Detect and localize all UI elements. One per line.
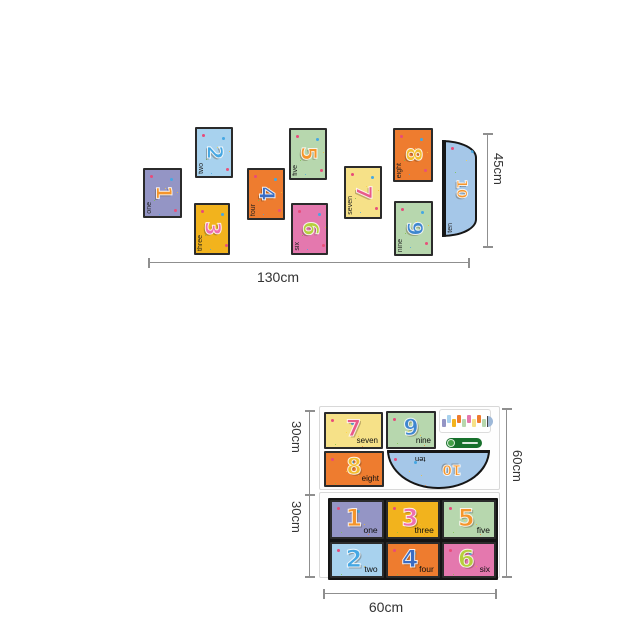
number-glyph-8: 8: [403, 147, 424, 162]
number-glyph-6: 6: [299, 221, 320, 236]
card-label-eight: eight: [362, 474, 379, 484]
sticker-card-three: 3three: [194, 203, 230, 255]
sticker-card-seven: 7seven: [344, 166, 382, 219]
sticker-card-six: 6six: [442, 542, 496, 578]
dim-line-arrangement-height: [483, 133, 493, 248]
card-label-ten: ten: [415, 455, 425, 464]
dim-label-sheet-total-height: 60cm: [511, 450, 524, 482]
sticker-card-two: 2two: [330, 542, 384, 578]
sticker-card-seven: 7seven: [324, 412, 383, 449]
number-glyph-10: 10: [454, 178, 468, 197]
thumbnail-card: [457, 415, 461, 423]
sticker-card-two: 2two: [195, 127, 233, 178]
card-label-two: two: [364, 564, 377, 574]
sticker-card-nine: 9nine: [394, 201, 433, 256]
card-label-ten: ten: [447, 223, 454, 233]
thumbnail-card: [447, 415, 451, 423]
card-label-four: four: [250, 204, 257, 216]
card-label-five: five: [292, 165, 299, 176]
thumbnail-card: [482, 419, 486, 427]
dim-line-sheet-total-height: [502, 408, 512, 578]
number-glyph-8: 8: [346, 457, 361, 479]
sticker-sheet-lower: 1one3three5five2two4four6six: [319, 492, 500, 578]
number-glyph-5: 5: [458, 506, 475, 530]
number-glyph-4: 4: [256, 186, 277, 201]
number-glyph-5: 5: [298, 146, 319, 161]
card-label-eight: eight: [396, 163, 403, 178]
card-label-one: one: [146, 202, 153, 214]
number-glyph-6: 6: [458, 547, 475, 571]
sticker-card-ten: 10ten: [387, 450, 490, 489]
sticker-card-three: 3three: [386, 500, 440, 539]
sticker-card-nine: 9nine: [386, 411, 436, 449]
thumbnail-semicircle-card: [487, 416, 493, 427]
number-glyph-4: 4: [402, 547, 419, 571]
sticker-sheet-upper: 7seven9nine8eight10ten: [319, 406, 500, 490]
thumbnail-card: [452, 419, 456, 427]
dim-label-lower-sheet-height: 30cm: [290, 501, 303, 533]
number-glyph-9: 9: [403, 221, 424, 236]
number-glyph-1: 1: [152, 185, 173, 200]
sticker-card-one: 1one: [330, 500, 384, 539]
dim-line-sheet-width: [323, 589, 497, 599]
brand-logo: [446, 438, 482, 448]
number-glyph-3: 3: [202, 221, 223, 236]
arrangement-thumbnail: [439, 409, 491, 433]
sticker-card-four: 4four: [386, 542, 440, 578]
thumbnail-card: [472, 419, 476, 427]
sticker-card-eight: 8eight: [393, 128, 433, 182]
thumbnail-card: [462, 419, 466, 427]
dim-label-arrangement-height: 45cm: [492, 153, 505, 185]
thumbnail-card: [477, 415, 481, 423]
number-glyph-2: 2: [204, 145, 225, 160]
sticker-grid: 1one3three5five2two4four6six: [328, 498, 498, 580]
sticker-card-five: 5five: [442, 500, 496, 539]
dim-line-arrangement-width: [148, 258, 470, 268]
card-label-five: five: [477, 525, 490, 535]
card-label-seven: seven: [357, 436, 378, 446]
sticker-card-ten: 10ten: [442, 140, 477, 237]
card-label-nine: nine: [397, 239, 404, 252]
dim-label-sheet-width: 60cm: [346, 600, 426, 614]
card-label-six: six: [480, 564, 490, 574]
dim-label-upper-sheet-height: 30cm: [290, 421, 303, 453]
dim-label-arrangement-width: 130cm: [238, 270, 318, 284]
card-label-two: two: [198, 163, 205, 174]
card-label-four: four: [419, 564, 434, 574]
number-glyph-10: 10: [443, 462, 462, 476]
card-label-six: six: [294, 242, 301, 251]
number-glyph-2: 2: [345, 547, 362, 571]
product-dimension-diagram: 1one2two3three4four5five6six7seven8eight…: [0, 0, 640, 640]
dim-line-sheet-halves: [305, 410, 315, 578]
sticker-card-five: 5five: [289, 128, 327, 180]
card-label-three: three: [197, 235, 204, 251]
number-glyph-1: 1: [345, 506, 362, 530]
sticker-card-eight: 8eight: [324, 451, 384, 487]
sticker-card-six: 6six: [291, 203, 328, 255]
number-glyph-7: 7: [353, 185, 374, 200]
card-label-three: three: [414, 525, 433, 535]
confetti-decoration: [389, 453, 488, 487]
thumbnail-card: [467, 415, 471, 423]
thumbnail-card: [442, 419, 446, 427]
card-label-seven: seven: [347, 196, 354, 215]
sticker-card-one: 1one: [143, 168, 182, 218]
sticker-card-four: 4four: [247, 168, 285, 220]
card-label-one: one: [363, 525, 377, 535]
card-label-nine: nine: [416, 436, 431, 446]
